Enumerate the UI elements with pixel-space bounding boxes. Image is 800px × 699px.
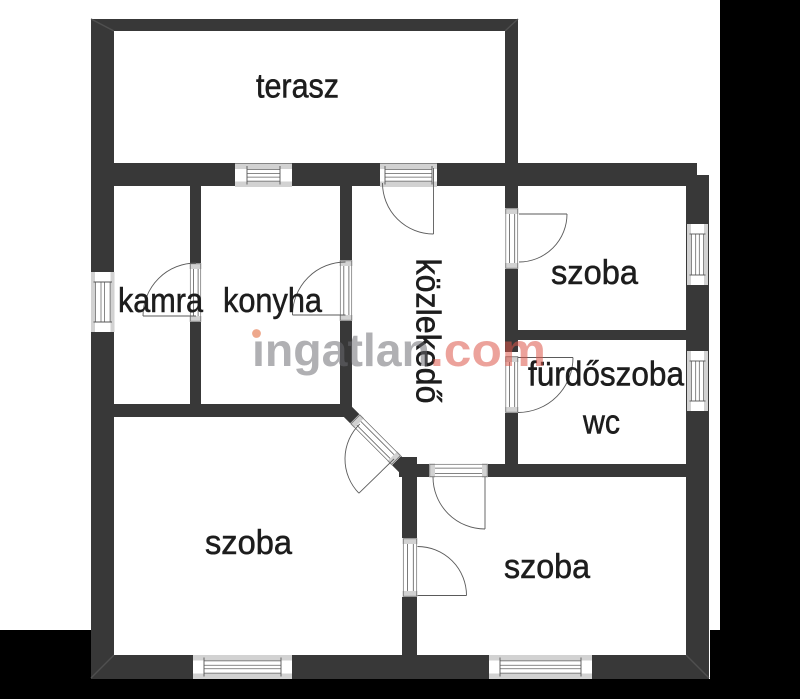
svg-text:fürdőszoba: fürdőszoba xyxy=(528,356,685,394)
svg-text:terasz: terasz xyxy=(256,68,339,106)
svg-text:ıngatlan: ıngatlan xyxy=(252,324,430,376)
svg-text:szoba: szoba xyxy=(205,524,293,562)
svg-text:szoba: szoba xyxy=(504,548,591,586)
svg-text:wc: wc xyxy=(582,404,620,442)
svg-text:szoba: szoba xyxy=(551,254,639,292)
svg-text:kamra: kamra xyxy=(118,282,204,320)
svg-text:konyha: konyha xyxy=(223,282,323,320)
svg-text:.com: .com xyxy=(430,324,546,376)
